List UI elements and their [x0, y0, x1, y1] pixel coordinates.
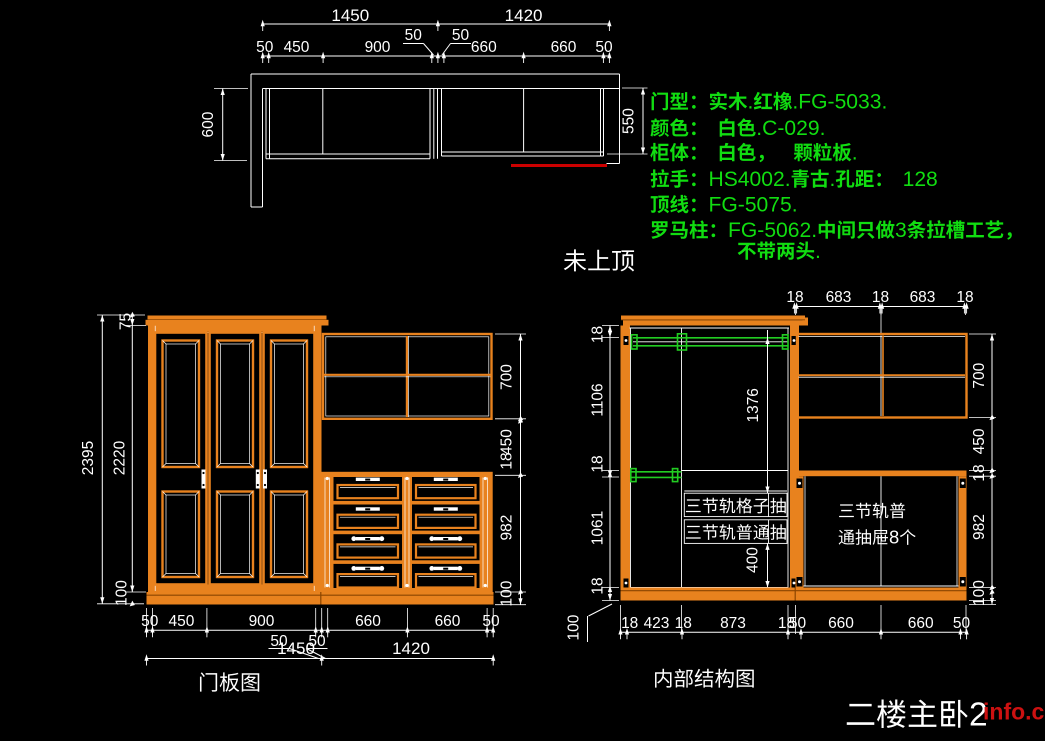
svg-text:450: 450: [499, 429, 516, 455]
svg-text:50: 50: [595, 39, 613, 56]
svg-text:982: 982: [971, 514, 988, 540]
svg-text:FG-5075.: FG-5075.: [709, 194, 798, 217]
svg-text:3: 3: [895, 219, 907, 242]
svg-text:450: 450: [971, 428, 988, 454]
svg-text:450: 450: [168, 613, 194, 630]
svg-text:50: 50: [405, 27, 423, 44]
svg-text:.: .: [852, 142, 858, 165]
svg-text:50: 50: [270, 633, 288, 650]
svg-text:660: 660: [435, 613, 461, 630]
svg-text:50: 50: [482, 613, 500, 630]
svg-text:info.cc: info.cc: [983, 699, 1045, 725]
svg-text:423: 423: [644, 615, 670, 632]
svg-text:50: 50: [308, 633, 326, 650]
svg-text:100: 100: [566, 614, 583, 640]
svg-text:2220: 2220: [112, 440, 129, 475]
svg-text:660: 660: [828, 615, 854, 632]
svg-text:1420: 1420: [505, 6, 543, 25]
svg-text:982: 982: [499, 515, 516, 541]
svg-text:660: 660: [551, 39, 577, 56]
svg-text:900: 900: [249, 613, 275, 630]
svg-text:700: 700: [971, 362, 988, 388]
svg-text:.: .: [830, 168, 836, 191]
svg-text:660: 660: [471, 39, 497, 56]
svg-text:75: 75: [118, 313, 135, 330]
svg-text:18: 18: [621, 615, 638, 632]
svg-text:50: 50: [452, 27, 470, 44]
svg-text:18: 18: [786, 289, 803, 306]
svg-text:2395: 2395: [80, 441, 97, 475]
svg-text:18: 18: [590, 577, 607, 594]
svg-text:660: 660: [908, 615, 934, 632]
svg-text:100: 100: [499, 580, 516, 606]
svg-text:450: 450: [284, 39, 310, 56]
svg-text:50: 50: [953, 615, 971, 632]
svg-text:400: 400: [745, 547, 762, 573]
svg-text:683: 683: [826, 289, 852, 306]
svg-text:50: 50: [256, 39, 274, 56]
svg-text:1420: 1420: [392, 639, 430, 658]
svg-text:8: 8: [889, 527, 899, 548]
svg-text:100: 100: [971, 580, 988, 606]
svg-text:700: 700: [499, 364, 516, 390]
svg-text:600: 600: [200, 111, 217, 137]
svg-text:50: 50: [141, 613, 159, 630]
svg-text:18: 18: [956, 289, 973, 306]
svg-text:900: 900: [365, 39, 391, 56]
svg-text:1376: 1376: [745, 388, 762, 422]
svg-text:128: 128: [903, 168, 938, 191]
svg-text:1106: 1106: [590, 383, 607, 416]
svg-text:18: 18: [872, 289, 889, 306]
svg-text:18: 18: [590, 326, 607, 343]
svg-text:18: 18: [971, 464, 988, 481]
svg-text:50: 50: [789, 615, 807, 632]
svg-text:HS4002.: HS4002.: [709, 168, 791, 191]
svg-text:873: 873: [720, 615, 746, 632]
svg-text:660: 660: [355, 613, 381, 630]
svg-text:.FG-5033.: .FG-5033.: [792, 91, 887, 114]
svg-text:1450: 1450: [331, 6, 369, 25]
svg-text:.: .: [748, 91, 754, 114]
svg-text:18: 18: [499, 452, 516, 469]
svg-text:.C-029.: .C-029.: [756, 117, 825, 140]
svg-text:100: 100: [114, 580, 131, 606]
svg-text:FG-5062.: FG-5062.: [728, 219, 817, 242]
svg-text:.: .: [815, 240, 821, 263]
svg-text:18: 18: [590, 455, 607, 472]
svg-text:18: 18: [675, 615, 692, 632]
svg-text:550: 550: [621, 108, 638, 134]
svg-text:1061: 1061: [590, 511, 607, 545]
svg-text:683: 683: [910, 289, 936, 306]
